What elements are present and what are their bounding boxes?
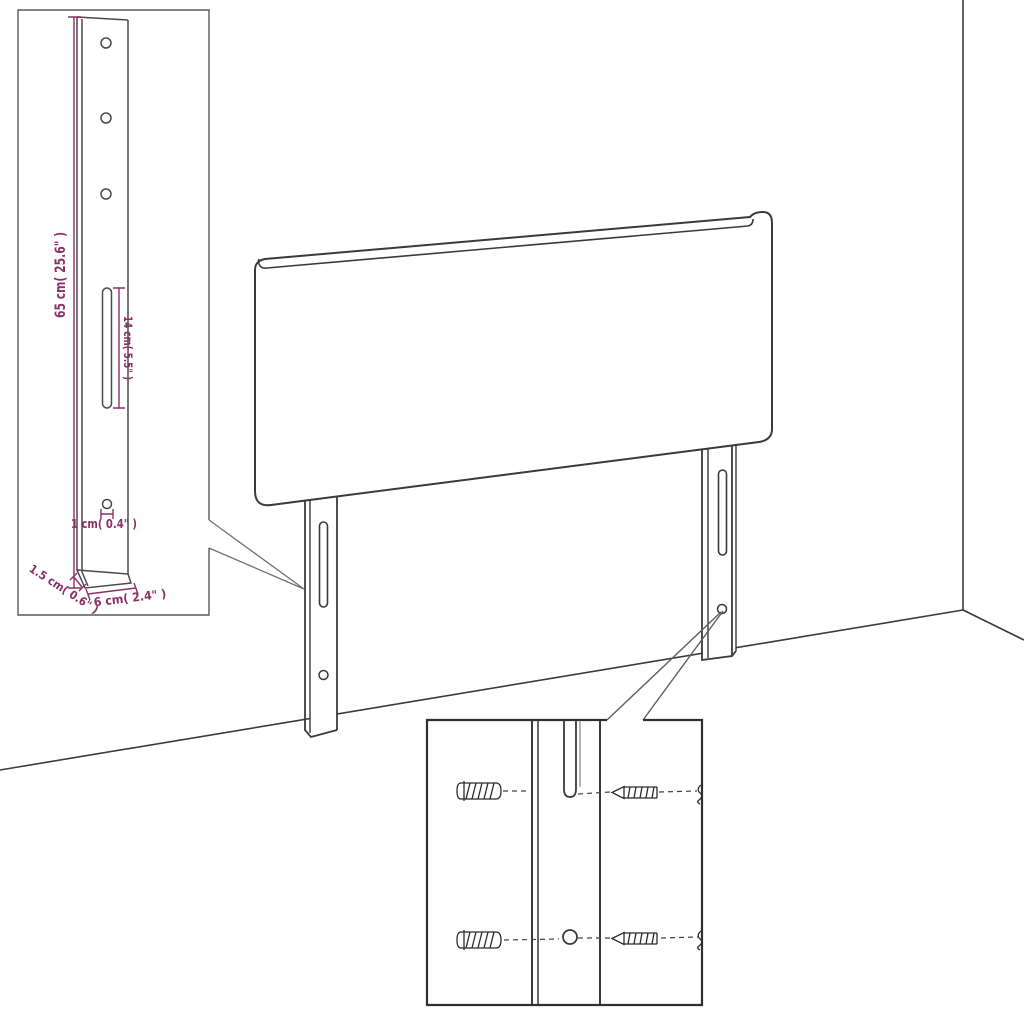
detail-leg-hole-2 (101, 113, 111, 123)
floor-line-right (963, 610, 1024, 640)
height-dimension-label: 65 cm( 25.6" ) (53, 232, 69, 318)
screw-threads (628, 787, 654, 798)
callout-wedge-left-leg (209, 520, 304, 589)
hardware-hole (563, 930, 577, 944)
screw-threads (628, 933, 654, 944)
wall-plug-ribs (466, 783, 494, 799)
detail-leg-hole-3 (101, 189, 111, 199)
thickness-dimension-label: 1.5 cm( 0.6" ) (27, 561, 102, 616)
hardware-slot (564, 721, 576, 797)
screw-top (612, 785, 702, 804)
leader-plug-bottom (504, 939, 559, 940)
wall-plug-bottom (457, 930, 501, 950)
panel-face (255, 212, 772, 505)
leader-screw-top (659, 791, 697, 792)
headboard-right-leg (702, 444, 736, 660)
dimension-line-height (68, 17, 81, 588)
screw-bottom (612, 931, 702, 950)
hole-dimension-label: 1 cm( 0.4" ) (71, 517, 137, 531)
headboard-panel (255, 212, 772, 505)
screw-tip (612, 933, 624, 945)
detail-leg-hole-1 (101, 38, 111, 48)
wall-plug-top (457, 781, 501, 801)
detail-leg-slot (103, 288, 112, 408)
width-dimension-label: 6 cm( 2.4" ) (93, 587, 167, 610)
headboard-left-leg (305, 494, 337, 737)
detail-leg-top-edge (77, 17, 128, 20)
leader-screw-bottom (661, 937, 698, 938)
product-diagram: 65 cm( 25.6" ) 14 cm( 5.5" ) 1 cm( 0.4" … (0, 0, 1024, 1024)
floor-line-left (0, 610, 963, 770)
wall-plug-ribs (466, 932, 494, 948)
slot-dimension-label: 14 cm( 5.5" ) (121, 316, 135, 380)
diagram-canvas: 65 cm( 25.6" ) 14 cm( 5.5" ) 1 cm( 0.4" … (0, 0, 1024, 1024)
leg-detail-inset: 65 cm( 25.6" ) 14 cm( 5.5" ) 1 cm( 0.4" … (18, 10, 209, 617)
detail-leg-small-hole (103, 500, 112, 509)
hardware-detail-inset (427, 720, 702, 1005)
screw-tip (612, 787, 624, 799)
leader-slot-screw (578, 792, 610, 794)
